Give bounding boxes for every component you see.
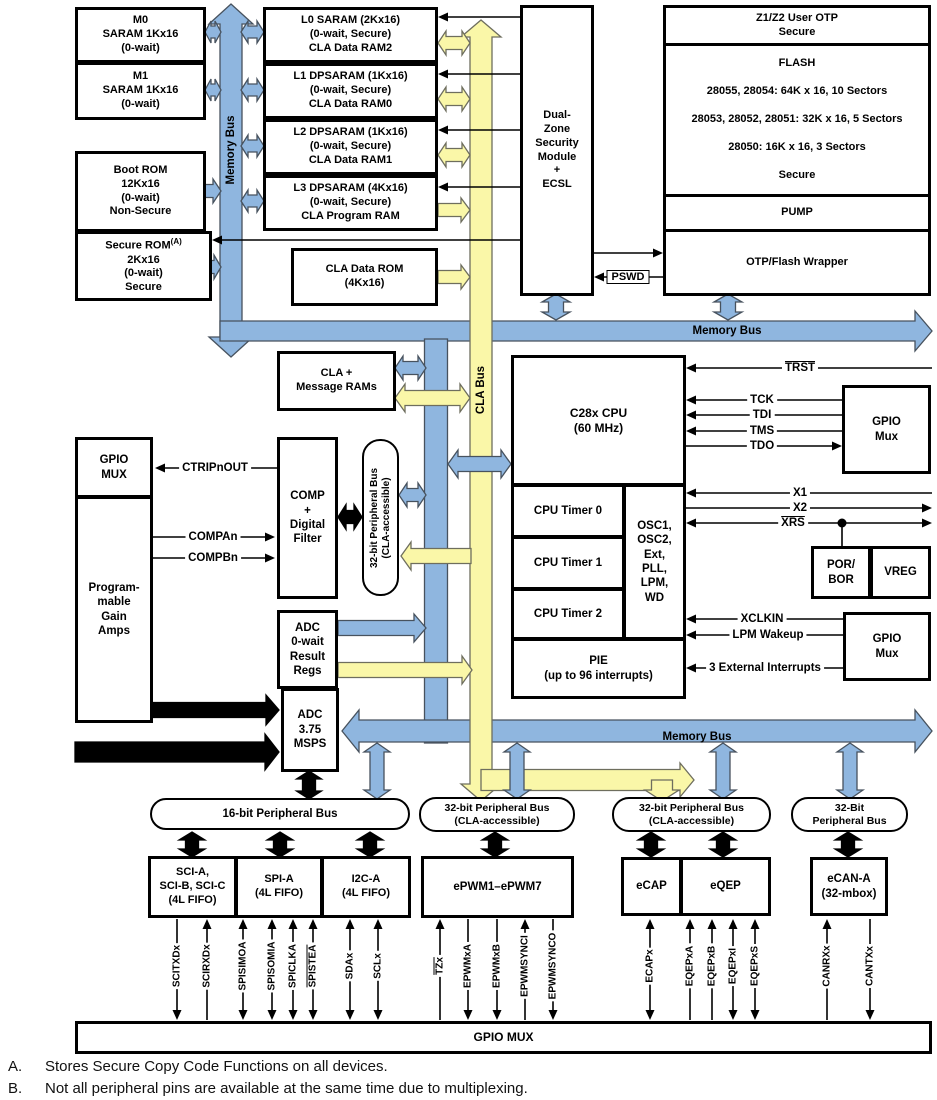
block-boot-rom: Boot ROM12Kx16(0-wait)Non-Secure <box>75 151 206 232</box>
block-secure-rom: Secure ROM(A) 2Kx16(0-wait)Secure <box>75 231 212 301</box>
block-epwm: ePWM1–ePWM7 <box>421 856 574 918</box>
label-memory-bus-top: Memory Bus <box>692 325 761 337</box>
signal-tdo: TDO <box>747 440 777 452</box>
pin-sclx: SCLx <box>372 951 385 981</box>
block-cpu-timer2: CPU Timer 2 <box>511 588 625 640</box>
block-ecap: eCAP <box>621 857 682 916</box>
block-cla-message-rams: CLA +Message RAMs <box>277 351 396 411</box>
block-l0-saram: L0 SARAM (2Kx16)(0-wait, Secure)CLA Data… <box>263 7 438 63</box>
block-user-otp: Z1/Z2 User OTPSecure <box>663 5 931 46</box>
block-gpio-mux-bottom: GPIO MUX <box>75 1021 932 1054</box>
block-cla-data-rom: CLA Data ROM(4Kx16) <box>291 248 438 306</box>
pin-spisomia: SPISOMIA <box>266 940 279 993</box>
signal-compbn: COMPBn <box>185 552 241 564</box>
pin-spisimoa: SPISIMOA <box>237 940 250 993</box>
pin-spistea: SPISTEA <box>307 943 320 990</box>
block-security-module: Dual-ZoneSecurityModule+ECSL <box>520 5 594 296</box>
bus-32bit-peripheral-c: 32-BitPeripheral Bus <box>791 797 908 832</box>
signal-tdi: TDI <box>750 409 775 421</box>
block-osc-pll-wd: OSC1,OSC2,Ext,PLL,LPM,WD <box>623 484 686 640</box>
signal-x1: X1 <box>790 487 810 499</box>
bus-32bit-peripheral-vertical: 32-bit Peripheral Bus (CLA-accessible) <box>362 439 399 596</box>
block-comp-filter: COMP+DigitalFilter <box>277 437 338 599</box>
block-l2-dpsaram: L2 DPSARAM (1Kx16)(0-wait, Secure)CLA Da… <box>263 119 438 175</box>
block-cpu-timer1: CPU Timer 1 <box>511 536 625 590</box>
signal-lpm-wakeup: LPM Wakeup <box>729 629 806 641</box>
block-spi: SPI-A(4L FIFO) <box>235 856 323 918</box>
block-pump: PUMP <box>663 194 931 232</box>
block-diagram: M0SARAM 1Kx16(0-wait) M1SARAM 1Kx16(0-wa… <box>0 0 937 1100</box>
block-adc: ADC3.75MSPS <box>281 688 339 772</box>
block-l3-dpsaram: L3 DPSARAM (4Kx16)(0-wait, Secure)CLA Pr… <box>263 175 438 231</box>
pin-tzx: TZx <box>434 955 447 977</box>
block-por-bor: POR/BOR <box>811 546 871 599</box>
block-otp-flash-wrapper: OTP/Flash Wrapper <box>663 229 931 296</box>
signal-tms: TMS <box>747 425 777 437</box>
block-i2c: I2C-A(4L FIFO) <box>321 856 411 918</box>
bus-32bit-peripheral-b: 32-bit Peripheral Bus(CLA-accessible) <box>612 797 771 832</box>
bus-32bit-peripheral-a: 32-bit Peripheral Bus(CLA-accessible) <box>419 797 575 832</box>
footnote-b: B.Not all peripheral pins are available … <box>8 1080 528 1097</box>
block-adc-result-regs: ADC0-waitResultRegs <box>277 610 338 689</box>
block-vreg: VREG <box>870 546 931 599</box>
signal-ext-interrupts: 3 External Interrupts <box>706 662 824 674</box>
pin-scirxdx: SCIRXDx <box>201 942 214 989</box>
pin-eqepxa: EQEPxA <box>684 944 697 989</box>
signal-pswd: PSWD <box>607 270 650 284</box>
block-ecan: eCAN-A(32-mbox) <box>810 857 888 916</box>
pin-eqepxb: EQEPxB <box>706 944 719 989</box>
pin-sdax: SDAx <box>344 951 357 982</box>
pin-canrxx: CANRXx <box>821 943 834 988</box>
pin-epwmsynci: EPWMSYNCI <box>519 933 532 999</box>
block-flash: FLASH28055, 28054: 64K x 16, 10 Sectors2… <box>663 43 931 197</box>
pin-ecapx: ECAPx <box>644 947 657 984</box>
pin-scitxdx: SCITXDx <box>171 943 184 989</box>
label-memory-bus-bottom: Memory Bus <box>662 731 731 743</box>
signal-xrs: XRS <box>778 517 808 529</box>
pin-spiclka: SPICLKA <box>287 942 300 990</box>
block-gpio-mux-jtag: GPIOMux <box>842 385 931 474</box>
block-eqep: eQEP <box>680 857 771 916</box>
label-memory-bus-vertical: Memory Bus <box>225 115 237 184</box>
signal-compan: COMPAn <box>186 531 241 543</box>
signal-tck: TCK <box>747 394 777 406</box>
signal-ctripnout: CTRIPnOUT <box>179 462 251 474</box>
block-gpio-mux-left: GPIOMUX <box>75 437 153 498</box>
bus-16bit-peripheral: 16-bit Peripheral Bus <box>150 798 410 830</box>
block-pie: PIE(up to 96 interrupts) <box>511 638 686 699</box>
pin-eqepxs: EQEPxS <box>749 944 762 988</box>
signal-x2: X2 <box>790 502 810 514</box>
block-m1-saram: M1SARAM 1Kx16(0-wait) <box>75 62 206 120</box>
signal-xclkin: XCLKIN <box>738 613 787 625</box>
pin-epwmsynco: EPWMSYNCO <box>547 931 560 1002</box>
footnote-a: A.Stores Secure Copy Code Functions on a… <box>8 1058 388 1075</box>
block-gpio-mux-wakeup: GPIOMux <box>843 612 931 681</box>
pin-eqepxi: EQEPxI <box>727 946 740 986</box>
block-l1-dpsaram: L1 DPSARAM (1Kx16)(0-wait, Secure)CLA Da… <box>263 63 438 119</box>
pin-epwmxb: EPWMxB <box>491 942 504 990</box>
block-m0-saram: M0SARAM 1Kx16(0-wait) <box>75 7 206 63</box>
signal-trst: TRST <box>782 362 818 374</box>
block-c28x-cpu: C28x CPU(60 MHz) <box>511 355 686 486</box>
block-cpu-timer0: CPU Timer 0 <box>511 484 625 538</box>
block-sci: SCI-A,SCI-B, SCI-C(4L FIFO) <box>148 856 237 918</box>
pin-cantxx: CANTXx <box>864 944 877 988</box>
label-cla-bus: CLA Bus <box>475 366 487 414</box>
pin-epwmxa: EPWMxA <box>462 942 475 990</box>
block-pga: Program-mableGainAmps <box>75 496 153 723</box>
